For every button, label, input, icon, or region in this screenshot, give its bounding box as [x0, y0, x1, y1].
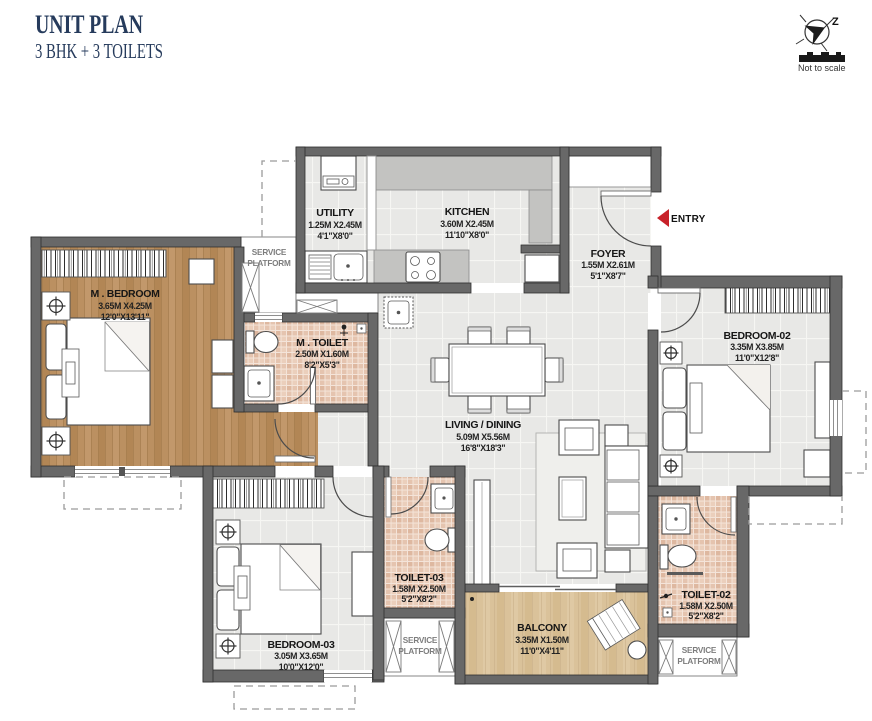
svg-text:BEDROOM-02: BEDROOM-02: [723, 330, 790, 342]
svg-text:12'0"X13'11": 12'0"X13'11": [101, 312, 150, 322]
svg-text:3.05M X3.65M: 3.05M X3.65M: [274, 651, 328, 661]
svg-text:1.55M X2.61M: 1.55M X2.61M: [581, 260, 635, 270]
svg-text:M . BEDROOM: M . BEDROOM: [90, 288, 160, 300]
svg-text:3.35M X3.85M: 3.35M X3.85M: [730, 342, 784, 352]
svg-text:3.60M X2.45M: 3.60M X2.45M: [440, 219, 494, 229]
svg-text:PLATFORM: PLATFORM: [247, 259, 291, 268]
svg-text:PLATFORM: PLATFORM: [398, 647, 442, 656]
svg-text:1.58M X2.50M: 1.58M X2.50M: [679, 601, 733, 611]
svg-text:3 BHK + 3 TOILETS: 3 BHK + 3 TOILETS: [35, 39, 163, 63]
svg-text:LIVING / DINING: LIVING / DINING: [445, 419, 521, 431]
svg-text:UTILITY: UTILITY: [316, 207, 354, 219]
svg-text:1.25M X2.45M: 1.25M X2.45M: [308, 220, 362, 230]
svg-text:PLATFORM: PLATFORM: [677, 657, 721, 666]
svg-text:3.35M X1.50M: 3.35M X1.50M: [515, 635, 569, 645]
svg-text:1.58M X2.50M: 1.58M X2.50M: [392, 584, 446, 594]
svg-text:11'0"X4'11": 11'0"X4'11": [520, 646, 564, 656]
svg-text:SERVICE: SERVICE: [682, 646, 717, 655]
svg-text:SERVICE: SERVICE: [252, 248, 287, 257]
svg-text:BALCONY: BALCONY: [517, 622, 567, 634]
svg-text:TOILET-03: TOILET-03: [394, 572, 443, 584]
svg-text:SERVICE: SERVICE: [403, 636, 438, 645]
svg-text:8'2"X5'3": 8'2"X5'3": [304, 360, 339, 370]
svg-text:UNIT PLAN: UNIT PLAN: [35, 10, 143, 39]
svg-text:TOILET-02: TOILET-02: [681, 589, 730, 601]
svg-text:11'0"X12'8": 11'0"X12'8": [735, 353, 779, 363]
svg-text:FOYER: FOYER: [591, 248, 626, 260]
svg-text:Z: Z: [832, 16, 839, 28]
svg-text:ENTRY: ENTRY: [671, 214, 706, 225]
svg-text:M . TOILET: M . TOILET: [296, 337, 349, 349]
svg-text:4'1"X8'0": 4'1"X8'0": [317, 231, 352, 241]
svg-text:5.09M X5.56M: 5.09M X5.56M: [456, 432, 510, 442]
svg-text:3.65M X4.25M: 3.65M X4.25M: [98, 301, 152, 311]
svg-text:5'2"X8'2": 5'2"X8'2": [688, 611, 723, 621]
svg-text:2.50M X1.60M: 2.50M X1.60M: [295, 349, 349, 359]
svg-text:16'8"X18'3": 16'8"X18'3": [461, 443, 506, 453]
svg-text:10'0"X12'0": 10'0"X12'0": [279, 662, 324, 672]
svg-text:5'1"X8'7": 5'1"X8'7": [590, 271, 625, 281]
svg-text:BEDROOM-03: BEDROOM-03: [267, 639, 334, 651]
svg-text:5'2"X8'2": 5'2"X8'2": [401, 594, 436, 604]
svg-text:KITCHEN: KITCHEN: [445, 206, 490, 218]
svg-text:11'10"X8'0": 11'10"X8'0": [445, 230, 489, 240]
svg-text:Not to scale: Not to scale: [798, 63, 846, 73]
